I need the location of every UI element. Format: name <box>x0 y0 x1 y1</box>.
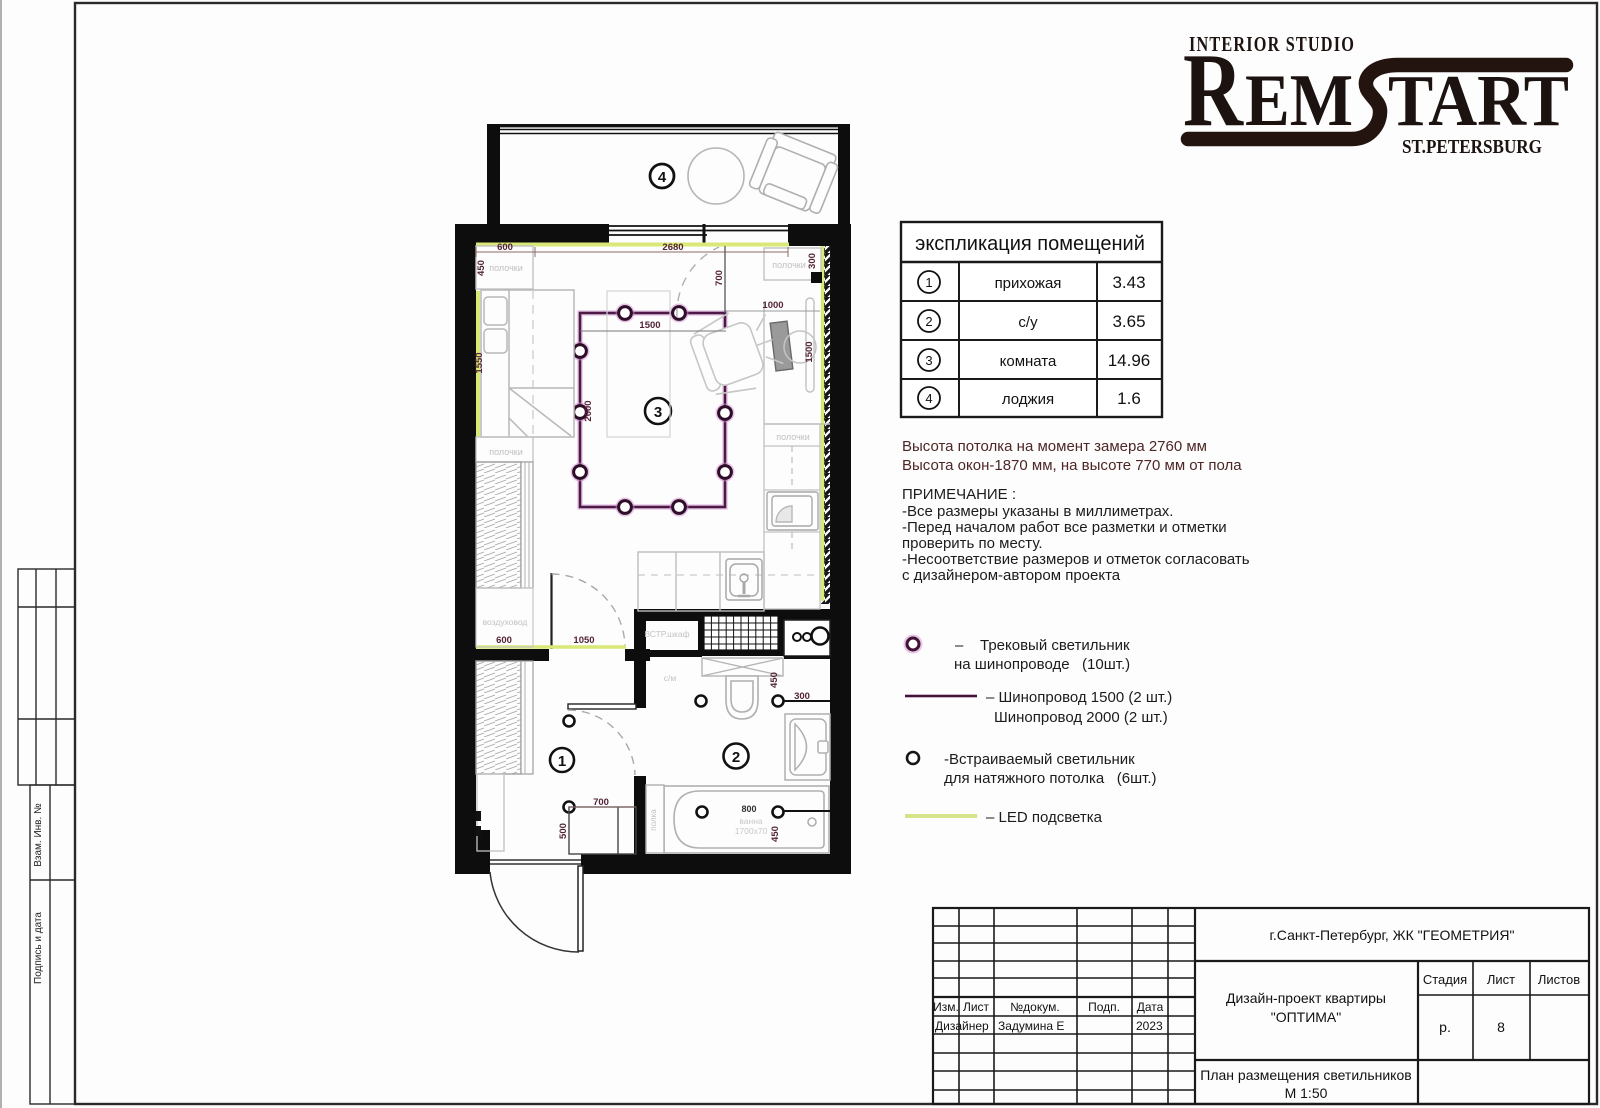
svg-text:с дизайнером-автором проекта: с дизайнером-автором проекта <box>902 567 1121 584</box>
svg-text:комната: комната <box>1000 353 1057 370</box>
svg-text:План размещения светильников: План размещения светильников <box>1200 1067 1411 1083</box>
svg-text:ВСТР.шкаф: ВСТР.шкаф <box>644 629 689 639</box>
svg-text:4: 4 <box>925 391 932 406</box>
svg-text:Изм.: Изм. <box>933 1000 959 1014</box>
svg-text:800: 800 <box>741 804 756 814</box>
svg-text:TART: TART <box>1388 60 1569 141</box>
svg-text:2023: 2023 <box>1136 1019 1163 1033</box>
svg-text:полочки: полочки <box>489 447 523 457</box>
svg-text:300: 300 <box>807 253 818 269</box>
svg-text:ST.PETERSBURG: ST.PETERSBURG <box>1402 136 1542 158</box>
svg-text:3.65: 3.65 <box>1112 312 1145 331</box>
svg-text:1000: 1000 <box>762 300 783 311</box>
svg-text:р.: р. <box>1439 1019 1451 1035</box>
svg-text:с/у: с/у <box>1018 314 1038 331</box>
svg-text:"ОПТИМА": "ОПТИМА" <box>1271 1009 1342 1025</box>
svg-text:воздуховод: воздуховод <box>483 617 528 627</box>
svg-text:1500: 1500 <box>804 341 815 362</box>
svg-text:2680: 2680 <box>662 242 683 253</box>
svg-text:прихожая: прихожая <box>995 275 1062 292</box>
svg-text:Высота потолка на момент замер: Высота потолка на момент замера 2760 мм <box>902 438 1207 455</box>
svg-text:450: 450 <box>769 672 780 688</box>
svg-text:ПРИМЕЧАНИЕ :: ПРИМЕЧАНИЕ : <box>902 486 1016 503</box>
svg-text:500: 500 <box>558 823 569 839</box>
svg-text:Высота окон-1870 мм, на высоте: Высота окон-1870 мм, на высоте 770 мм от… <box>902 457 1242 474</box>
svg-text:М 1:50: М 1:50 <box>1285 1085 1328 1101</box>
svg-text:-Встраиваемый светильник: -Встраиваемый светильник <box>944 751 1135 768</box>
svg-text:600: 600 <box>497 242 513 253</box>
svg-text:Лист: Лист <box>963 1000 990 1014</box>
svg-text:450: 450 <box>476 260 487 276</box>
svg-text:EM: EM <box>1245 60 1353 142</box>
svg-text:3: 3 <box>925 353 932 368</box>
svg-text:Дизайн-проект квартиры: Дизайн-проект квартиры <box>1226 990 1386 1006</box>
svg-text:Взам. Инв. №: Взам. Инв. № <box>33 803 44 867</box>
svg-text:на шинопроводе (10шт.): на шинопроводе (10шт.) <box>954 656 1130 673</box>
svg-text:3: 3 <box>654 404 662 421</box>
svg-text:1050: 1050 <box>573 635 594 646</box>
svg-text:600: 600 <box>496 635 512 646</box>
svg-text:-Все размеры указаны в миллиме: -Все размеры указаны в миллиметрах. <box>902 503 1173 520</box>
svg-text:Стадия: Стадия <box>1423 972 1467 987</box>
svg-text:полочки: полочки <box>772 260 806 270</box>
svg-text:2: 2 <box>732 749 740 766</box>
svg-text:Лист: Лист <box>1487 972 1515 987</box>
svg-text:лоджия: лоджия <box>1002 391 1054 408</box>
svg-text:№докум.: №докум. <box>1010 1000 1059 1014</box>
svg-text:ванна: ванна <box>739 816 763 826</box>
svg-text:Листов: Листов <box>1538 972 1580 987</box>
svg-text:-Перед началом работ все разме: -Перед началом работ все разметки и отме… <box>902 519 1227 536</box>
svg-text:с/м: с/м <box>664 673 677 683</box>
svg-text:Шинопровод 2000 (2 шт.): Шинопровод 2000 (2 шт.) <box>994 709 1168 726</box>
svg-text:1500: 1500 <box>639 320 660 331</box>
svg-text:1.6: 1.6 <box>1117 389 1141 408</box>
svg-text:полка: полка <box>649 809 658 831</box>
svg-text:Подп.: Подп. <box>1088 1000 1120 1014</box>
svg-text:– LED подсветка: – LED подсветка <box>986 809 1103 826</box>
svg-text:2: 2 <box>925 314 932 329</box>
svg-text:700: 700 <box>714 270 725 286</box>
svg-text:Дата: Дата <box>1137 1000 1164 1014</box>
svg-text:Подпись и дата: Подпись и дата <box>33 912 44 984</box>
svg-text:R: R <box>1183 31 1244 148</box>
svg-text:проверить по месту.: проверить по месту. <box>902 535 1043 552</box>
svg-text:450: 450 <box>770 826 781 842</box>
svg-text:8: 8 <box>1497 1019 1505 1035</box>
svg-text:14.96: 14.96 <box>1108 351 1151 370</box>
svg-text:1550: 1550 <box>474 352 485 373</box>
svg-text:300: 300 <box>794 691 810 702</box>
svg-text:г.Санкт-Петербург, ЖК "ГЕОМЕ: г.Санкт-Петербург, ЖК "ГЕОМЕТРИЯ" <box>1270 927 1515 943</box>
svg-text:1: 1 <box>925 275 932 290</box>
svg-text:Задумина Е: Задумина Е <box>998 1019 1064 1033</box>
svg-text:полочки: полочки <box>776 432 810 442</box>
svg-text:3.43: 3.43 <box>1112 273 1145 292</box>
svg-text:для натяжного потолка (6шт.): для натяжного потолка (6шт.) <box>944 770 1156 787</box>
svg-text:2000: 2000 <box>583 400 594 421</box>
svg-text:4: 4 <box>658 169 667 186</box>
svg-text:– Шинопровод 1500 (2 шт.): – Шинопровод 1500 (2 шт.) <box>986 689 1172 706</box>
svg-text:Дизайнер: Дизайнер <box>935 1019 989 1033</box>
svg-text:экспликация помещений: экспликация помещений <box>915 233 1145 255</box>
svg-text:– Трековый светильник: – Трековый светильник <box>955 637 1130 654</box>
svg-text:1700х70: 1700х70 <box>735 826 768 836</box>
svg-text:-Несоответствие размеров и отм: -Несоответствие размеров и отметок согла… <box>902 551 1250 568</box>
svg-text:1: 1 <box>558 753 566 770</box>
svg-text:полочки: полочки <box>489 263 523 273</box>
svg-text:700: 700 <box>593 797 609 808</box>
